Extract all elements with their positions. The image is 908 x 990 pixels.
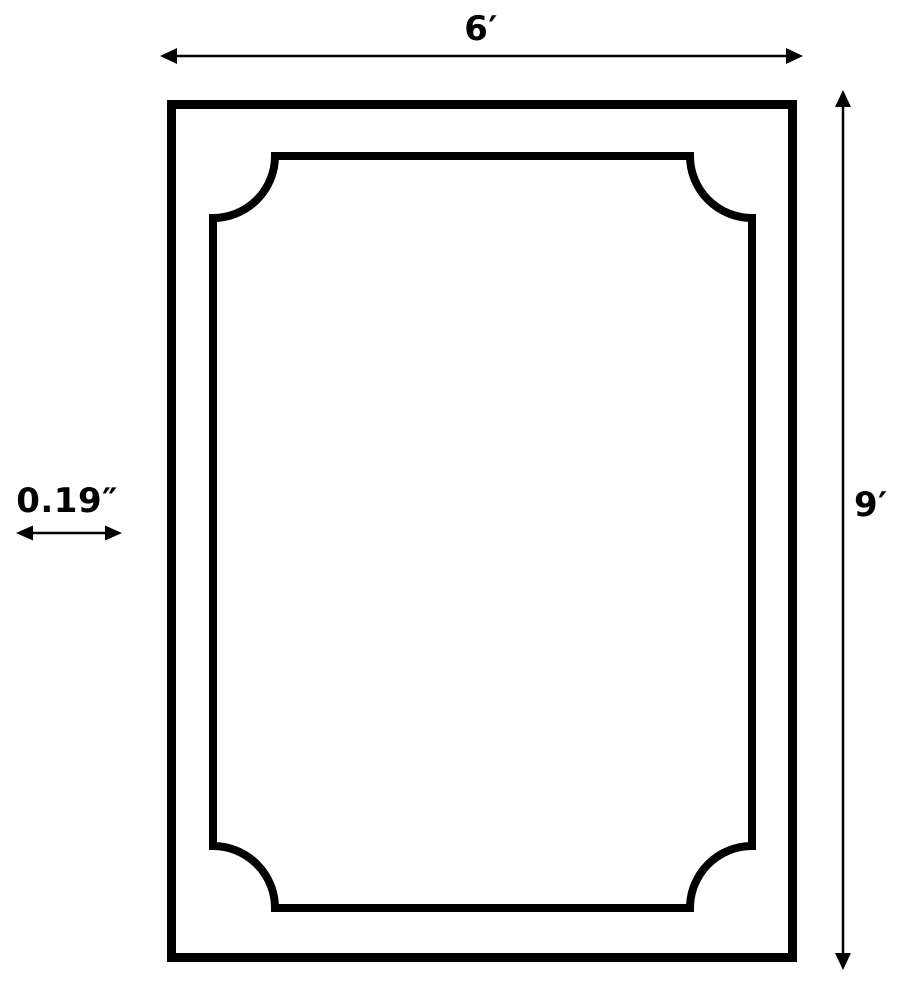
arrowhead-up-icon [835,90,851,107]
width-dimension-arrow [160,48,803,64]
height-dimension-label: 9′ [854,488,888,522]
arrowhead-right-icon [105,526,122,541]
inner-frame-border [213,156,752,908]
arrowhead-left-icon [16,526,33,541]
arrowhead-left-icon [160,48,177,64]
dimension-diagram: 6′ 9′ 0.19″ [0,0,908,990]
width-dimension-label: 6′ [464,12,498,46]
thickness-dimension-label: 0.19″ [16,484,118,518]
height-dimension-arrow [835,90,851,970]
arrowhead-down-icon [835,953,851,970]
outer-frame-rectangle [172,105,793,958]
thickness-dimension-arrow [16,526,122,541]
frame-drawing [0,0,908,990]
arrowhead-right-icon [786,48,803,64]
